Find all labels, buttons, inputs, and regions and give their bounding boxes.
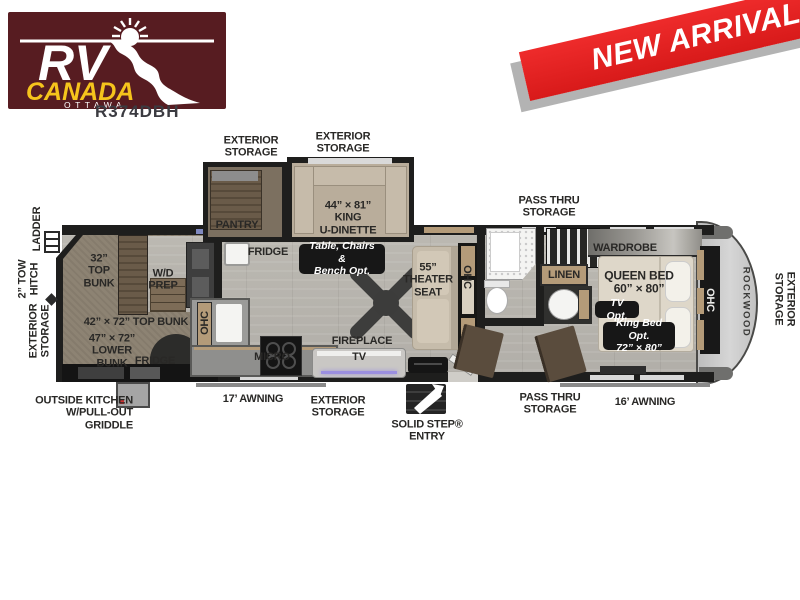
- label-fridge-main: FRIDGE: [248, 246, 288, 258]
- label-ohc-kitchen: OHC: [199, 311, 211, 335]
- fireplace-led-glow: [321, 371, 397, 374]
- label-exterior-storage-top-2: EXTERIOR STORAGE: [316, 131, 371, 156]
- label-tv: TV: [352, 351, 366, 363]
- rv-canada-logo: RV CANADA OTTAWA: [8, 12, 226, 109]
- label-exterior-storage-right: EXTERIOR STORAGE: [772, 272, 797, 327]
- label-wardrobe: WARDROBE: [593, 242, 657, 254]
- model-number: R374DBH: [95, 102, 179, 122]
- rv-listing-image: RV CANADA OTTAWA R374DBH NEW ARRIVAL: [0, 0, 800, 600]
- shower: [486, 228, 536, 280]
- label-32-top-bunk: 32” TOP BUNK: [84, 253, 115, 290]
- kitchen-sink: [215, 303, 243, 343]
- awning-rail-16: [560, 383, 710, 387]
- dinette-window: [308, 158, 392, 164]
- label-exterior-storage-left: EXTERIOR STORAGE: [28, 304, 53, 359]
- label-outside-kitchen: OUTSIDE KITCHEN W/PULL-OUT GRIDDLE: [35, 395, 133, 432]
- awning-rail-17: [196, 383, 326, 387]
- bunk-divider-cabinet: [118, 235, 148, 315]
- label-king-u-dinette: 44” × 81” KING U-DINETTE: [320, 200, 377, 237]
- vanity-counter: [544, 286, 592, 324]
- label-ladder: LADDER: [31, 207, 43, 252]
- label-wd-prep: W/D PREP: [148, 268, 177, 293]
- solid-step-icon: [406, 384, 446, 414]
- label-ohc-bed: OHC: [704, 288, 716, 312]
- toilet-icon: [486, 287, 508, 314]
- label-fireplace: FIREPLACE: [332, 335, 393, 347]
- label-42x72-top-bunk: 42” × 72” TOP BUNK: [84, 316, 189, 328]
- label-17-awning: 17’ AWNING: [223, 393, 284, 405]
- outdoor-grill-icon: [408, 357, 448, 373]
- fridge-icon: [224, 242, 250, 266]
- new-arrival-text: NEW ARRIVAL: [588, 0, 800, 78]
- new-arrival-banner: NEW ARRIVAL: [519, 0, 800, 101]
- label-linen: LINEN: [548, 269, 580, 281]
- label-tow-hitch: 2” TOW HITCH: [17, 260, 42, 299]
- label-theater-seat: 55” THEATER SEAT: [403, 262, 453, 299]
- window-slit: [640, 375, 684, 380]
- option-table-chairs-bench: Table, Chairs & Bench Opt.: [299, 244, 385, 274]
- label-ohc-theater: OHC: [461, 265, 473, 289]
- label-rockwood: ROCKWOOD: [740, 267, 751, 338]
- label-16-awning: 16’ AWNING: [615, 396, 676, 408]
- label-solid-step-entry: SOLID STEP® ENTRY: [391, 419, 462, 444]
- option-king-bed: King Bed Opt. 72” × 80”: [603, 322, 675, 350]
- window-slit: [590, 375, 634, 380]
- bath-wall-left: [477, 225, 485, 333]
- option-tv: TV Opt.: [595, 301, 639, 318]
- bed-bench: [600, 366, 646, 374]
- label-pass-thru-storage-bottom: PASS THRU STORAGE: [520, 392, 581, 417]
- ohc-strip-top: [424, 227, 474, 233]
- label-queen-bed: QUEEN BED 60” × 80”: [604, 270, 674, 297]
- label-pantry: PANTRY: [216, 219, 259, 231]
- label-exterior-storage-top-1: EXTERIOR STORAGE: [224, 135, 279, 160]
- bath-wall-bottom: [477, 318, 544, 326]
- label-micro: MICRO: [254, 351, 290, 363]
- ladder-icon: [44, 231, 60, 253]
- label-47x72-lower-bunk: 47” × 72” LOWER BUNK: [89, 333, 135, 370]
- label-pass-thru-storage-top: PASS THRU STORAGE: [519, 195, 580, 220]
- label-exterior-storage-bottom: EXTERIOR STORAGE: [311, 395, 366, 420]
- logo-graphic: RV CANADA OTTAWA: [8, 12, 226, 109]
- label-fridge-rear: FRIDGE: [135, 355, 175, 367]
